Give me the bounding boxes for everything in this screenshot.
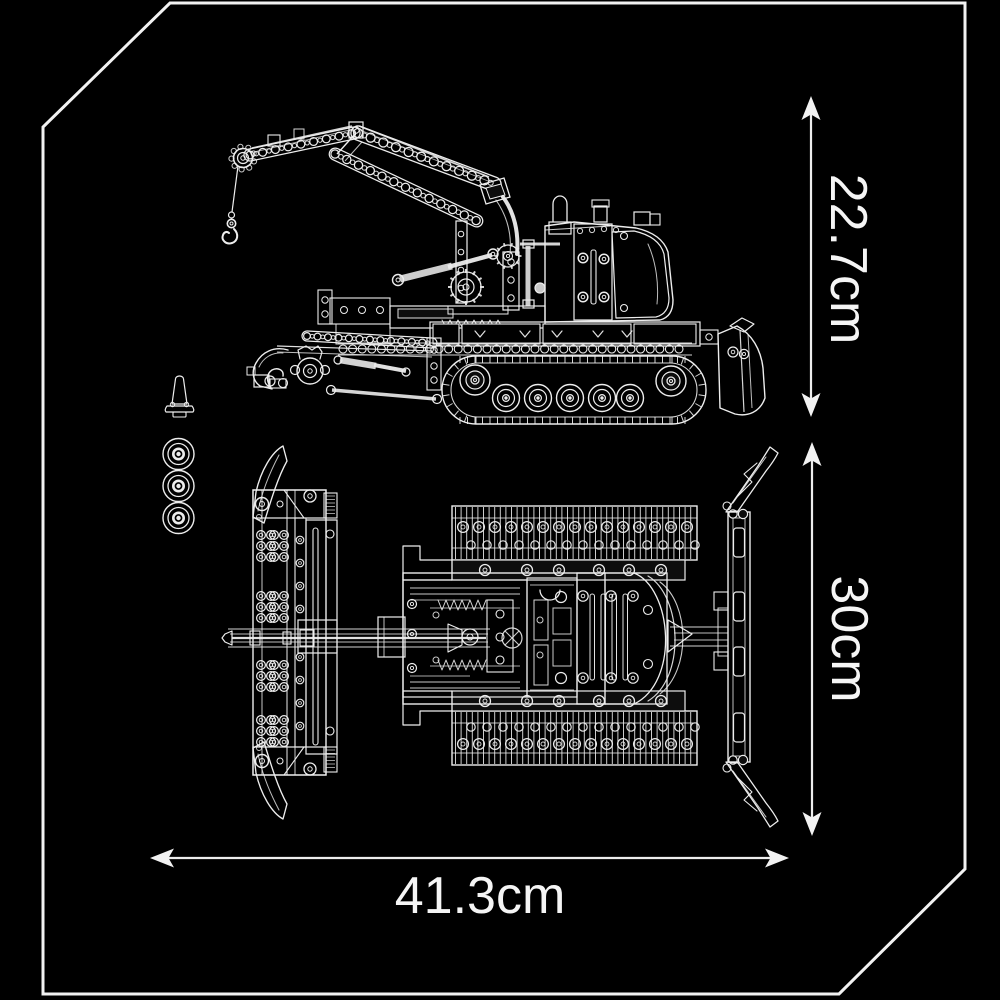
svg-text:22.7cm: 22.7cm [819,174,877,345]
svg-text:30cm: 30cm [820,575,878,702]
svg-text:41.3cm: 41.3cm [395,867,566,925]
